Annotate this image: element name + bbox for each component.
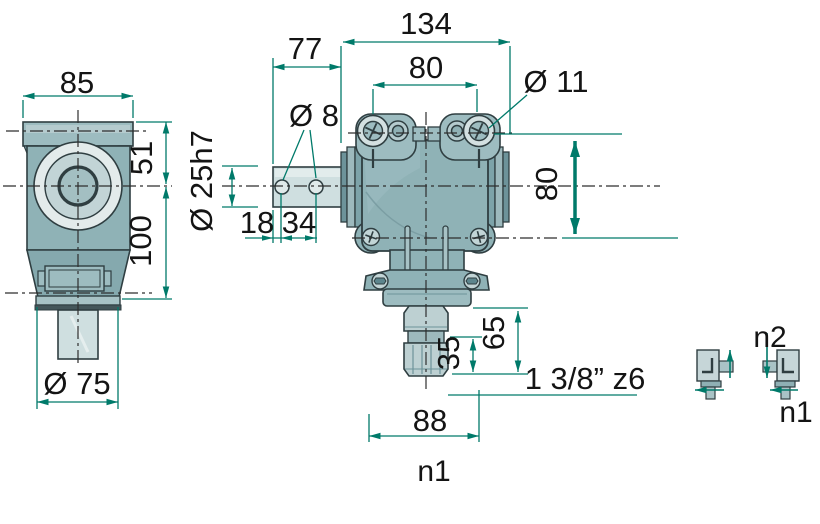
dim-output-projection: 65: [476, 316, 511, 350]
dim-output-spline-spec: 1 3/8” z6: [525, 361, 646, 396]
dim-left-lower-offset: 100: [123, 215, 158, 267]
dim-spline-length: 35: [431, 336, 466, 370]
dim-vertical-hole-spacing: 80: [529, 167, 564, 201]
dim-pin-hole-spacing: 34: [282, 205, 316, 240]
input-speed-label: n2: [753, 321, 786, 354]
dim-top-hole-dia: Ø 11: [524, 64, 589, 99]
dim-pin-hole-end: 18: [240, 205, 274, 240]
main-view-label: n1: [417, 455, 450, 488]
technical-drawing-page: 85 51 100 Ø 75 134 77 80 Ø 11 Ø 8 Ø 25h7…: [0, 0, 820, 524]
dim-output-flange-dia: Ø 75: [43, 366, 110, 401]
dim-input-projection: 77: [288, 31, 322, 66]
rotation-icon-mirrored: [695, 350, 733, 399]
dim-top-hole-spacing: 80: [409, 50, 443, 85]
dim-input-shaft-dia: Ø 25h7: [184, 130, 219, 232]
input-shaft: [273, 167, 345, 207]
top-washer-right: [464, 116, 495, 147]
gearbox-drawing: 85 51 100 Ø 75 134 77 80 Ø 11 Ø 8 Ø 25h7…: [0, 0, 820, 524]
dim-left-width: 85: [60, 65, 94, 100]
dim-overall-width: 134: [400, 6, 452, 41]
left-coupling: [341, 147, 363, 227]
dim-pin-hole-dia: Ø 8: [289, 98, 339, 133]
output-speed-label: n1: [779, 396, 812, 429]
dim-base-width: 88: [413, 403, 447, 438]
dim-left-upper-offset: 51: [124, 141, 159, 175]
top-washer-left: [358, 116, 389, 147]
